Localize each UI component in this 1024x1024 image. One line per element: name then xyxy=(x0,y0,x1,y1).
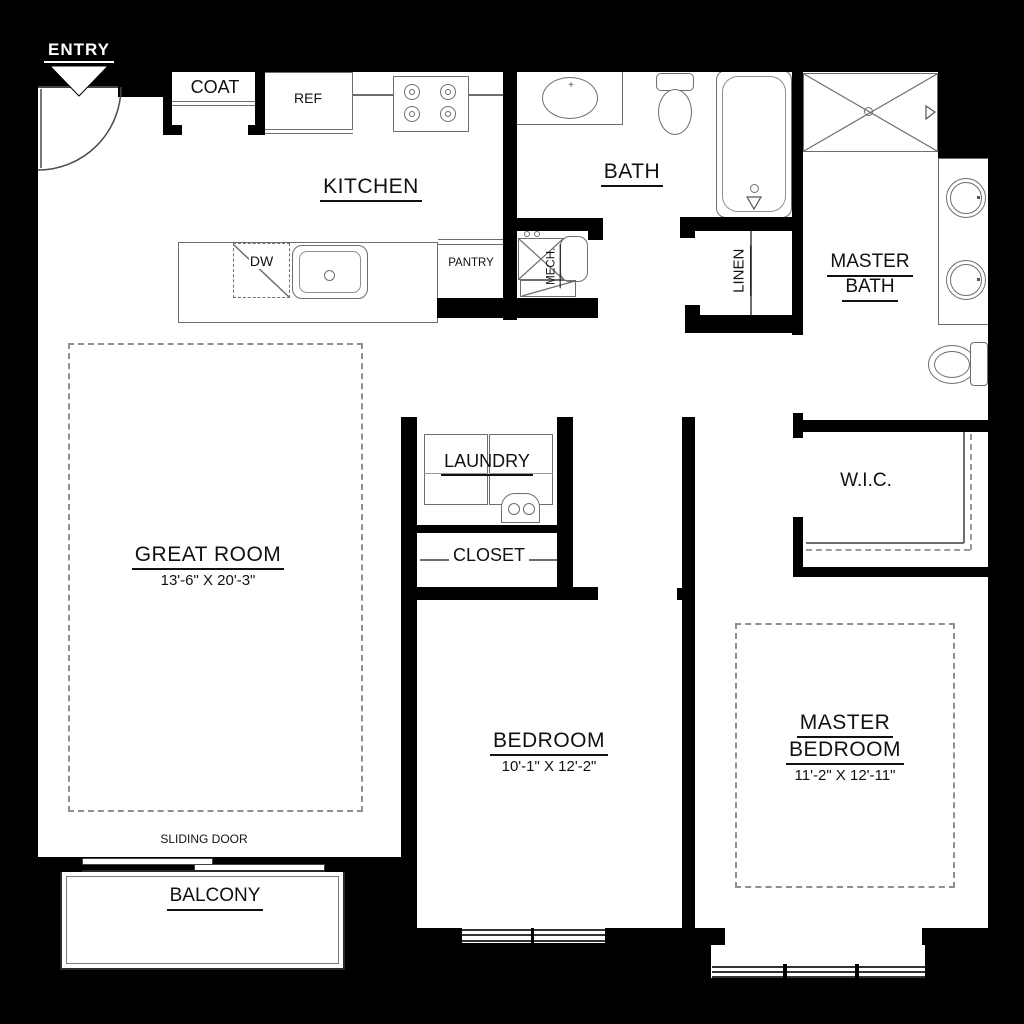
wall-linen-cap-bottom xyxy=(685,305,700,333)
master-bath-label: MASTER BATH xyxy=(809,252,931,302)
wic-label: W.I.C. xyxy=(806,471,926,492)
sliding-door-label: SLIDING DOOR xyxy=(144,833,264,846)
bedroom-window-mullion xyxy=(531,928,534,943)
wall-linen-right xyxy=(792,61,803,335)
wall-mbr-bottom-right xyxy=(922,928,1008,945)
wall-great-room-bottom-right xyxy=(325,857,403,872)
water-heater-knob-2 xyxy=(534,231,540,237)
bath-label: BATH xyxy=(592,160,672,187)
coat-shelf-line-2 xyxy=(172,105,258,106)
wall-bay-right xyxy=(925,944,938,980)
wic-shelf-line-bottom xyxy=(806,542,964,544)
dw-label: DW xyxy=(233,254,290,269)
wall-bedroom-bottom-left xyxy=(400,928,462,944)
stove-burner-3-dot xyxy=(409,111,415,117)
master-toilet-bowl-inner xyxy=(934,351,970,378)
wic-rod-dashed-bottom xyxy=(806,549,970,551)
great-room-label: GREAT ROOM 13'-6" X 20'-3" xyxy=(68,543,348,590)
wall-great-room-bottom-left xyxy=(18,857,82,872)
laundry-label: LAUNDRY xyxy=(417,452,557,476)
wall-bath-bottom-right xyxy=(680,217,803,231)
shower-drain xyxy=(864,107,873,116)
kitchen-sink-drain xyxy=(324,270,335,281)
wall-kitchen-bath xyxy=(503,61,517,320)
wall-closet-bottom xyxy=(403,587,598,600)
master-bedroom-label: MASTER BEDROOM 11'-2" X 12'-11" xyxy=(755,711,935,785)
water-heater-knob-1 xyxy=(524,231,530,237)
entry-threshold-line xyxy=(38,86,118,88)
master-toilet-tank xyxy=(970,342,988,386)
bath-toilet-bowl xyxy=(658,89,692,135)
stove xyxy=(393,76,469,132)
closet-label: CLOSET xyxy=(429,546,549,566)
master-bedroom-dimensions: 11'-2" X 12'-11" xyxy=(795,765,896,785)
bathtub-drain xyxy=(750,184,759,193)
wall-shower-block xyxy=(938,61,990,158)
wall-top xyxy=(163,61,1008,72)
wall-wic-bottom xyxy=(802,567,992,577)
master-sink-2-faucet xyxy=(977,278,980,281)
wall-coat-left xyxy=(163,61,172,135)
bedroom-label: BEDROOM 10'-1" X 12'-2" xyxy=(459,729,639,776)
entry-label: ENTRY xyxy=(39,40,119,60)
pantry-label: PANTRY xyxy=(438,257,504,270)
wall-entry-jamb xyxy=(118,86,168,97)
coat-shelf-line-1 xyxy=(172,101,258,102)
pantry-door-line-2 xyxy=(438,244,503,245)
wall-left xyxy=(18,84,38,857)
floor-kitchen-nook xyxy=(438,318,598,418)
stove-burner-1-dot xyxy=(409,89,415,95)
pantry-door-line-1 xyxy=(438,239,503,240)
wall-laundry-right xyxy=(557,417,573,595)
wic-rod-dashed-right xyxy=(970,434,972,550)
dishwasher xyxy=(233,243,290,298)
wall-linen-cap-top xyxy=(680,217,695,238)
bay-window-mullion-2 xyxy=(855,964,859,979)
wall-wic-cap-top xyxy=(793,413,803,438)
bedroom-dimensions: 10'-1" X 12'-2" xyxy=(502,756,597,776)
ref-label: REF xyxy=(263,91,353,106)
wall-right xyxy=(988,61,1008,945)
bay-window-midline xyxy=(712,971,926,973)
wall-linen-bottom xyxy=(685,315,792,333)
wall-pantry-mech-bottom xyxy=(437,298,598,318)
balcony-label: BALCONY xyxy=(120,886,310,911)
refrigerator-front-line xyxy=(263,129,353,134)
wall-bedroom-bottom-right xyxy=(605,928,695,944)
kitchen-label: KITCHEN xyxy=(311,175,431,202)
wall-laundry-closet-divider xyxy=(410,525,560,533)
bay-window-mullion-1 xyxy=(783,964,787,979)
wic-shelf-line-right xyxy=(963,432,965,543)
entry-label-text: ENTRY xyxy=(48,40,110,59)
floor-plan: + xyxy=(0,0,1024,1024)
stove-burner-4-dot xyxy=(445,111,451,117)
wall-master-bedroom-left xyxy=(682,417,695,930)
laundry-utility-dial-1 xyxy=(508,503,520,515)
linen-label: LINEN xyxy=(731,241,751,301)
wall-bedroom-left xyxy=(401,417,417,944)
mech-label: MECH. xyxy=(546,240,561,292)
stove-burner-2-dot xyxy=(445,89,451,95)
wall-bay-left xyxy=(700,944,711,980)
wall-bedroom-door-jamb xyxy=(677,588,682,600)
great-room-dimensions: 13'-6" X 20'-3" xyxy=(161,570,256,590)
wall-mbr-bottom-left xyxy=(695,928,725,945)
coat-label: COAT xyxy=(172,78,258,98)
bath-faucet-mark: + xyxy=(564,80,578,91)
laundry-utility-dial-2 xyxy=(523,503,535,515)
wall-bath-door-jamb xyxy=(588,218,603,240)
entry-label-underline xyxy=(44,61,114,63)
water-heater xyxy=(560,236,588,282)
wall-master-bath-bottom xyxy=(803,420,990,432)
wall-coat-cap-left xyxy=(172,125,182,135)
floor-master-bath-door xyxy=(792,335,803,420)
master-sink-1-faucet xyxy=(977,196,980,199)
